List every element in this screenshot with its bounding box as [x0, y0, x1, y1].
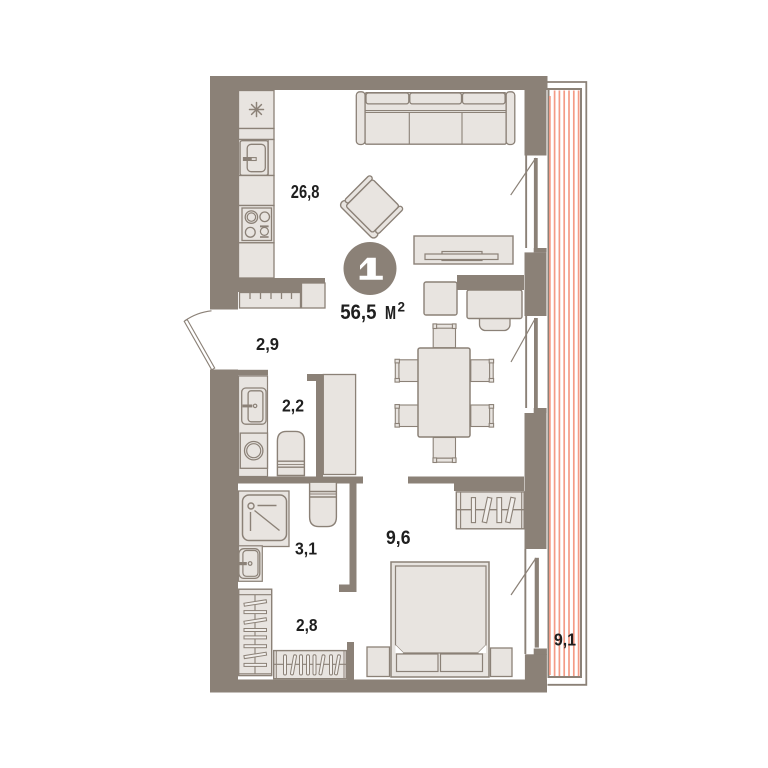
svg-text:9,6: 9,6 — [386, 528, 411, 549]
svg-text:3,1: 3,1 — [295, 539, 317, 559]
svg-text:9,1: 9,1 — [554, 630, 576, 650]
svg-text:56,5: 56,5 — [340, 300, 376, 324]
svg-text:2: 2 — [398, 299, 406, 314]
svg-text:26,8: 26,8 — [291, 181, 320, 202]
svg-text:2,8: 2,8 — [296, 615, 318, 635]
svg-text:2,9: 2,9 — [256, 334, 279, 354]
svg-text:2,2: 2,2 — [282, 396, 304, 416]
svg-text:м: м — [385, 298, 397, 325]
